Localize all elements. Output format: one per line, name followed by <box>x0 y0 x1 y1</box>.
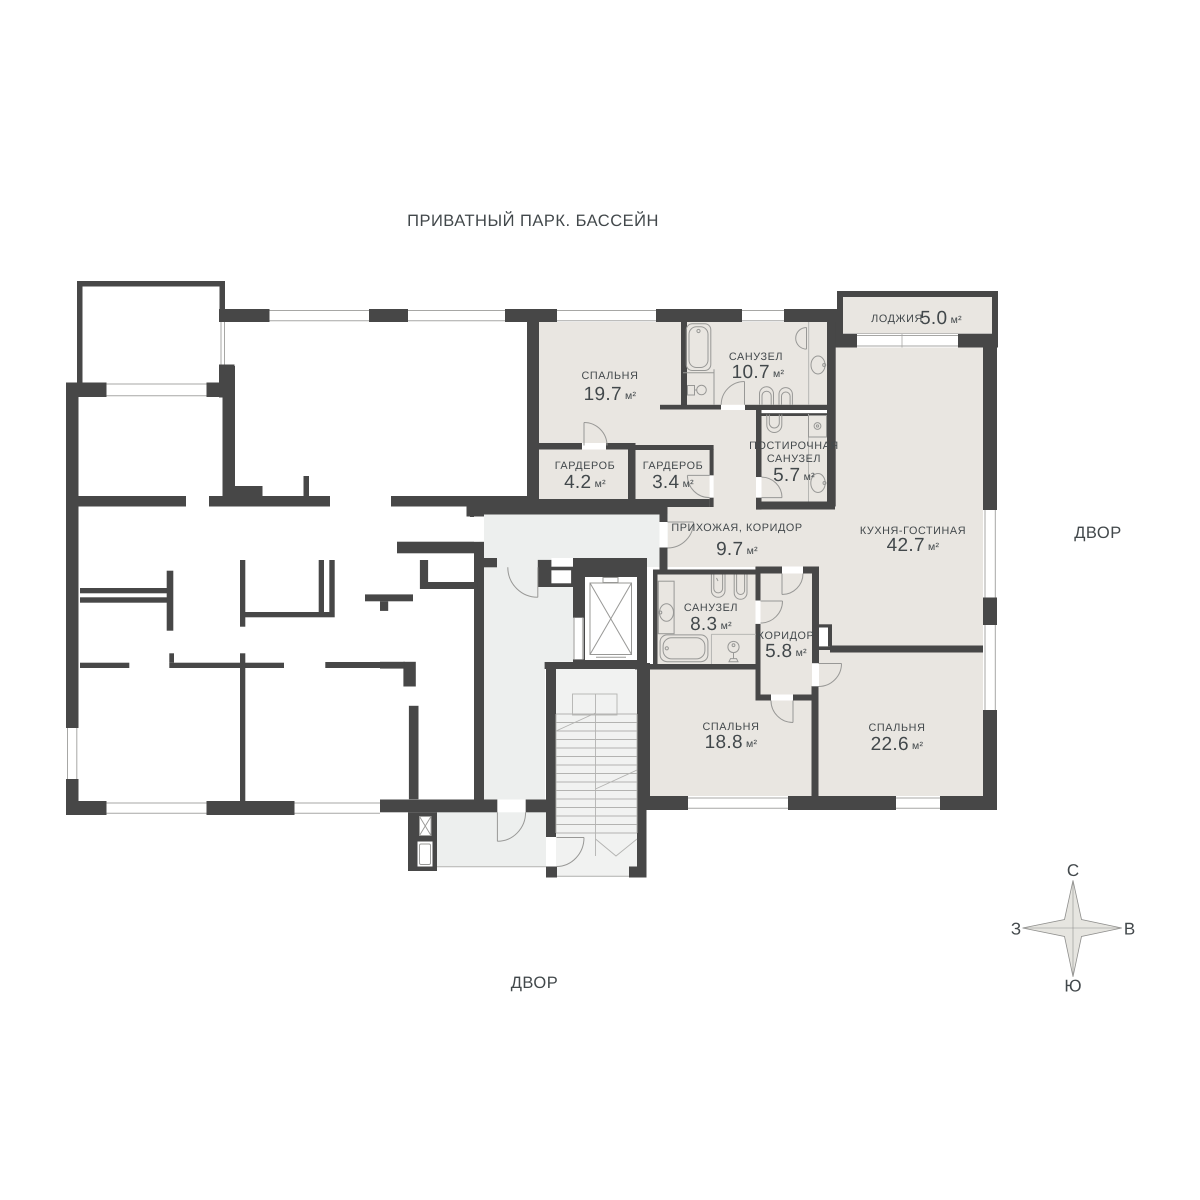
svg-text:ПРИХОЖАЯ, КОРИДОР: ПРИХОЖАЯ, КОРИДОР <box>671 522 802 534</box>
svg-text:САНУЗЕЛ: САНУЗЕЛ <box>767 453 821 465</box>
svg-text:ДВОР: ДВОР <box>511 974 558 992</box>
svg-text:ЛОДЖИЯ: ЛОДЖИЯ <box>871 313 923 325</box>
svg-text:С: С <box>1067 861 1079 880</box>
svg-text:В: В <box>1124 920 1135 939</box>
svg-text:САНУЗЕЛ: САНУЗЕЛ <box>684 602 738 614</box>
svg-text:ДВОР: ДВОР <box>1074 524 1121 542</box>
svg-text:СПАЛЬНЯ: СПАЛЬНЯ <box>582 370 639 382</box>
svg-text:ПОСТИРОЧНАЯ: ПОСТИРОЧНАЯ <box>749 440 839 452</box>
svg-text:ГАРДЕРОБ: ГАРДЕРОБ <box>643 460 704 472</box>
svg-text:ГАРДЕРОБ: ГАРДЕРОБ <box>555 460 616 472</box>
svg-text:СПАЛЬНЯ: СПАЛЬНЯ <box>869 722 926 734</box>
svg-text:З: З <box>1011 920 1021 939</box>
svg-text:Ю: Ю <box>1064 977 1081 996</box>
svg-text:ПРИВАТНЫЙ ПАРК. БАССЕЙН: ПРИВАТНЫЙ ПАРК. БАССЕЙН <box>407 211 659 230</box>
